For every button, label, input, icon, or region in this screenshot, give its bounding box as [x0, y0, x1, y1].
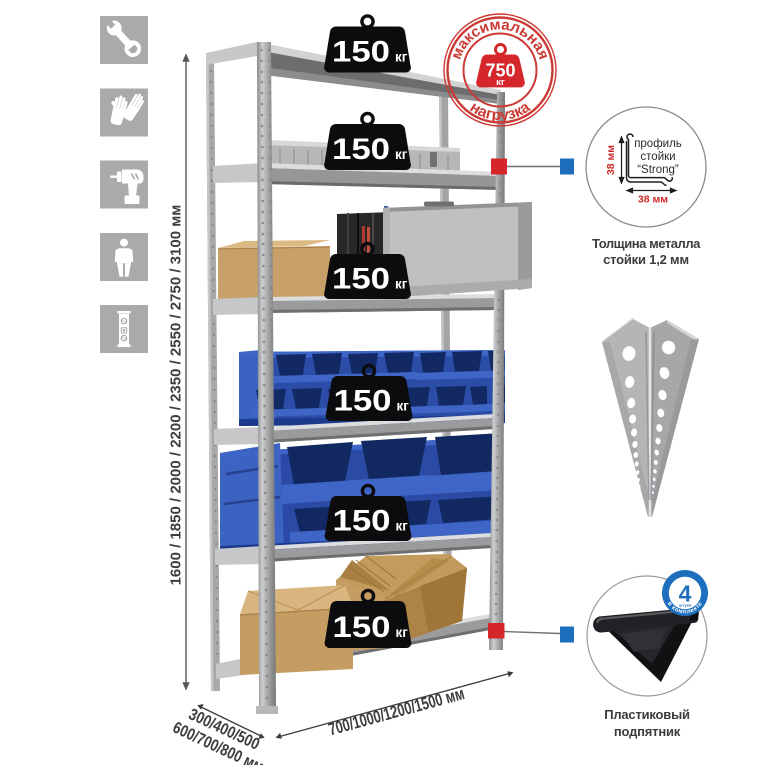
svg-text:150: 150	[332, 36, 390, 69]
svg-text:Толщина металла: Толщина металла	[592, 236, 701, 251]
svg-text:150: 150	[333, 611, 391, 644]
svg-text:кг: кг	[395, 277, 408, 292]
svg-text:150: 150	[332, 263, 390, 296]
svg-text:штуки: штуки	[679, 603, 692, 608]
svg-text:кг: кг	[397, 399, 410, 414]
svg-text:Пластиковый: Пластиковый	[604, 707, 690, 722]
svg-text:кг: кг	[396, 625, 409, 640]
svg-text:38 мм: 38 мм	[605, 145, 617, 175]
svg-text:1600 / 1850 / 2000 / 2200 / 23: 1600 / 1850 / 2000 / 2200 / 2350 / 2550 …	[168, 205, 185, 586]
svg-text:кг: кг	[396, 519, 409, 534]
svg-text:стойки 1,2 мм: стойки 1,2 мм	[603, 252, 689, 267]
svg-text:38 мм: 38 мм	[638, 194, 668, 206]
svg-text:кг: кг	[395, 147, 408, 162]
svg-text:профиль: профиль	[634, 138, 682, 150]
svg-text:кг: кг	[395, 50, 408, 65]
svg-text:стойки: стойки	[640, 151, 675, 163]
svg-text:подпятник: подпятник	[614, 724, 681, 739]
svg-text:“Strong”: “Strong”	[637, 164, 679, 176]
svg-text:кг: кг	[496, 77, 505, 88]
svg-text:150: 150	[333, 505, 391, 538]
svg-text:150: 150	[334, 385, 392, 418]
svg-text:150: 150	[332, 133, 390, 166]
